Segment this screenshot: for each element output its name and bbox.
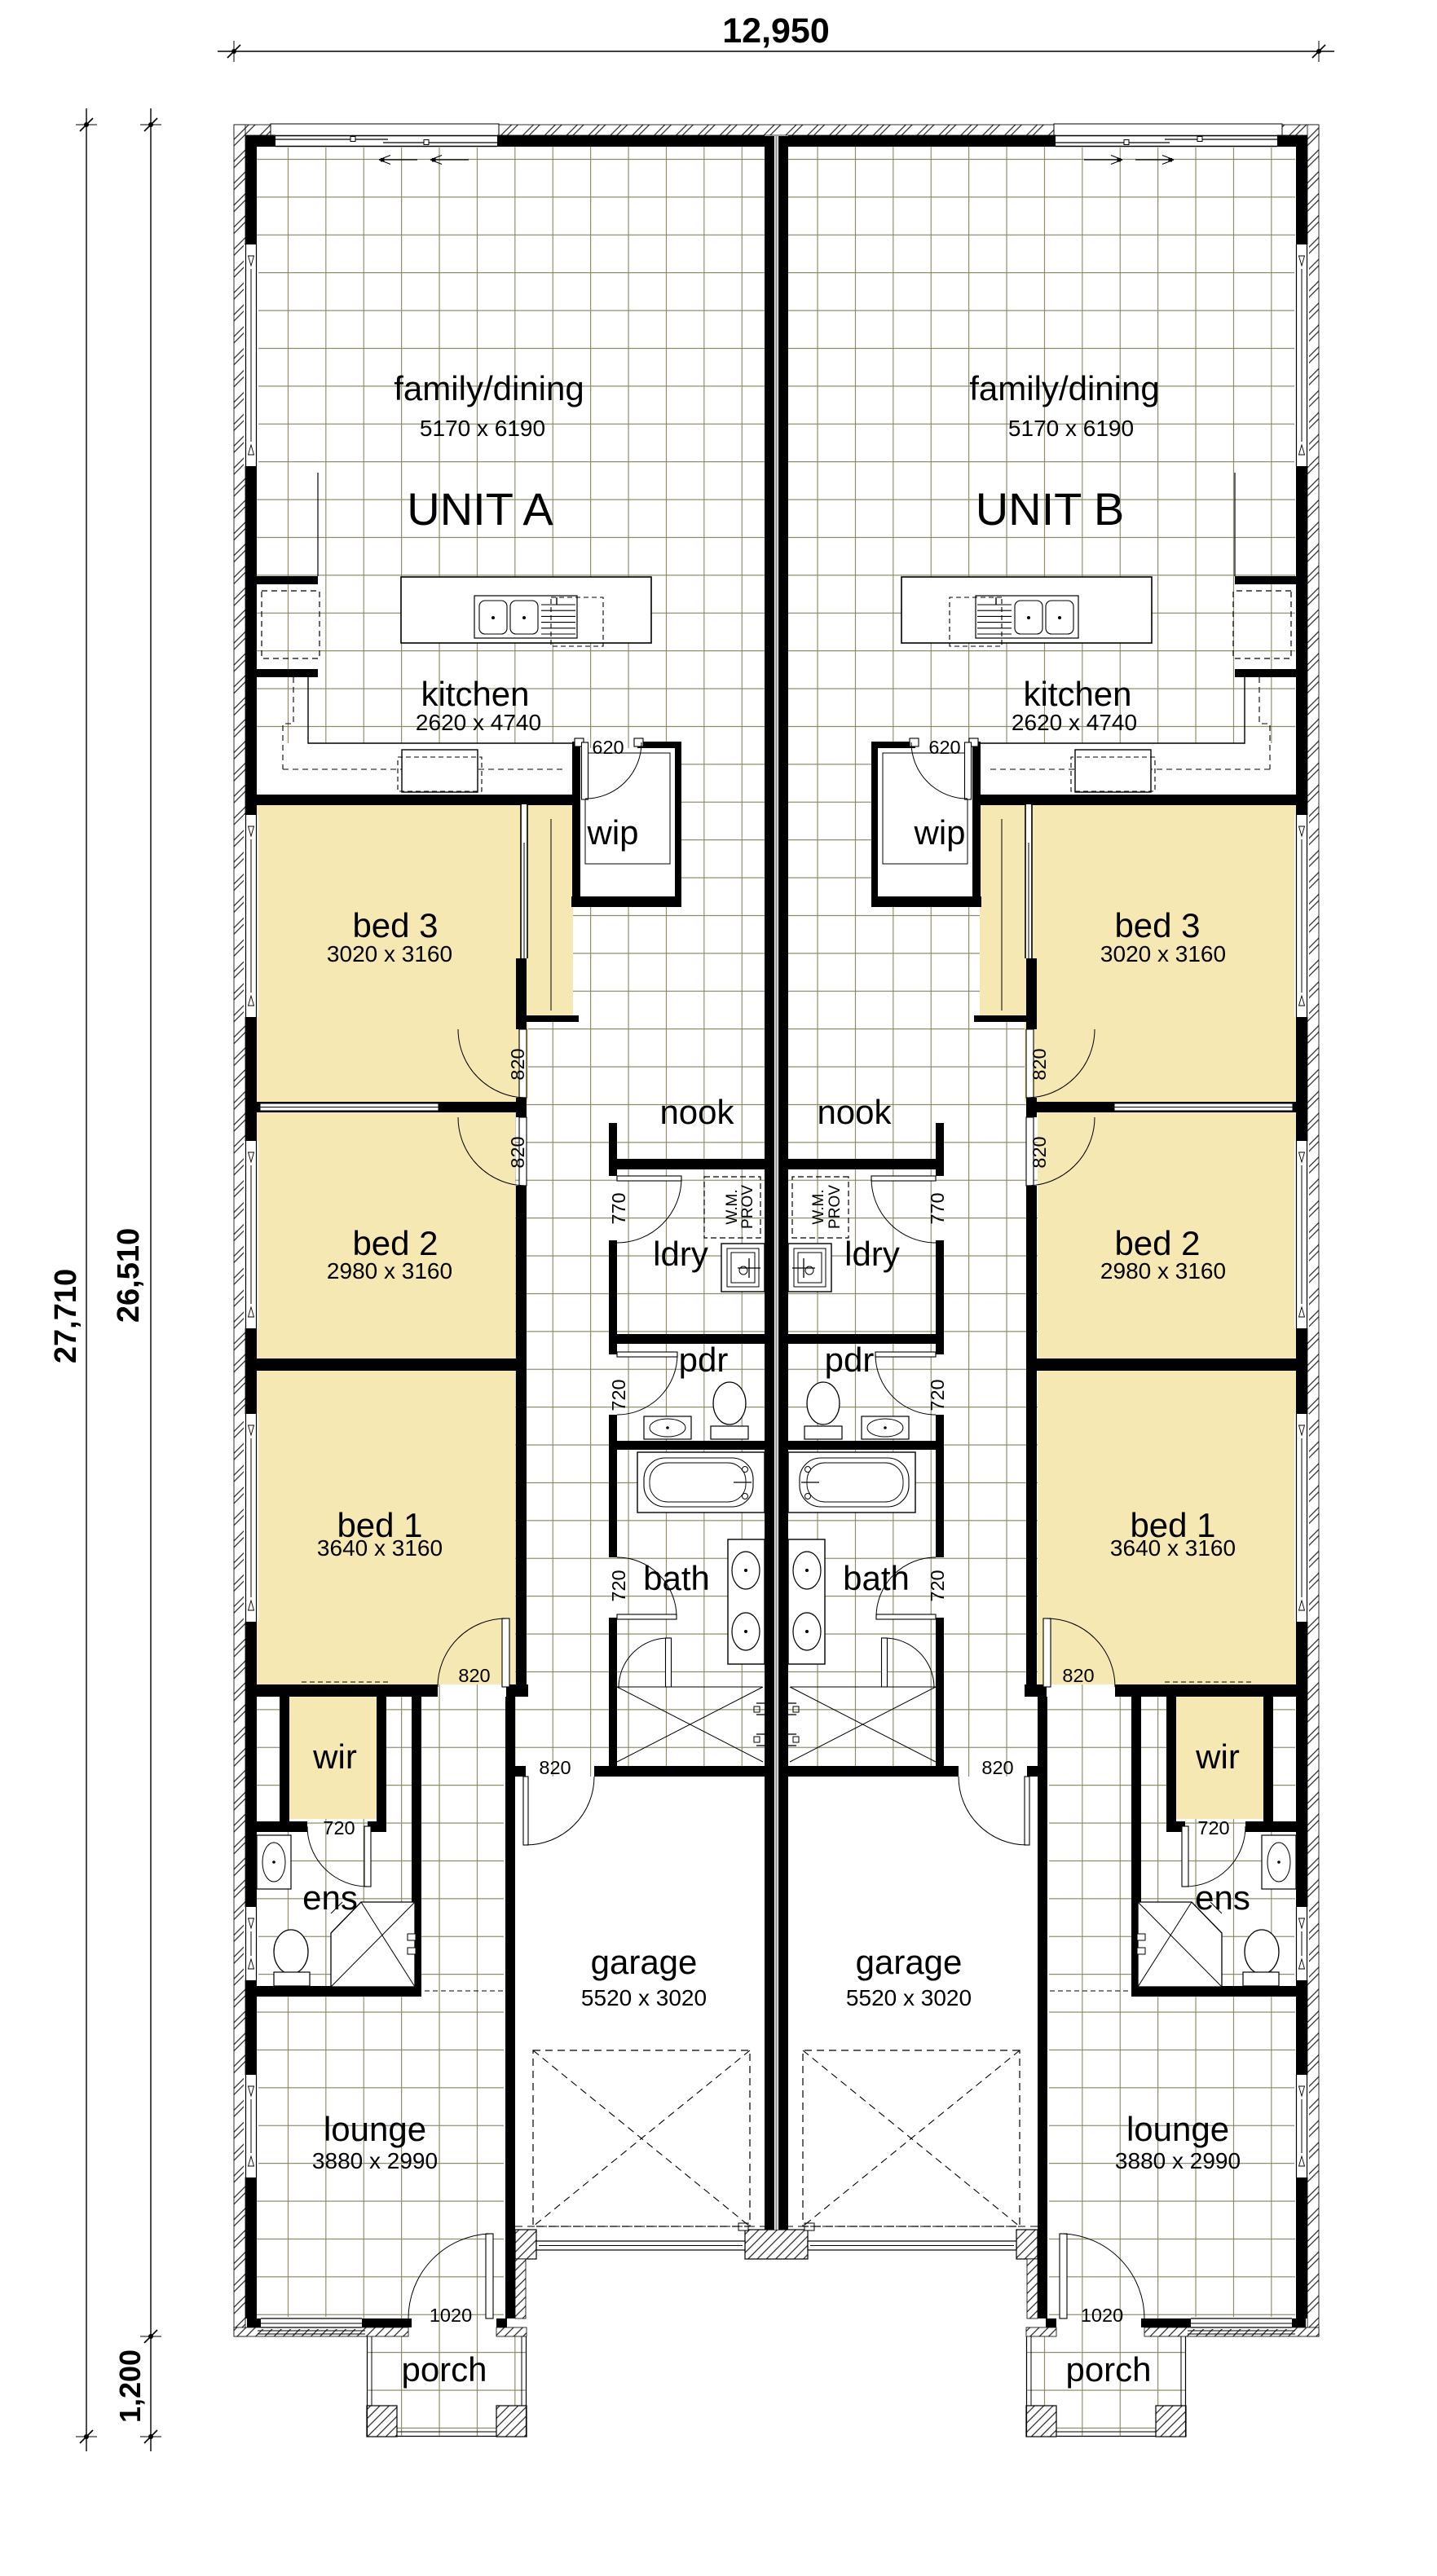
svg-text:lounge: lounge	[324, 2110, 426, 2148]
svg-text:porch: porch	[401, 2350, 487, 2389]
svg-text:620: 620	[592, 737, 624, 758]
svg-text:820: 820	[539, 1757, 571, 1778]
svg-text:wir: wir	[1195, 1737, 1240, 1776]
svg-text:3020 x 3160: 3020 x 3160	[1100, 941, 1226, 967]
svg-text:PROV: PROV	[739, 1185, 756, 1229]
svg-text:W.M.: W.M.	[810, 1189, 827, 1224]
svg-text:720: 720	[323, 1817, 355, 1838]
svg-text:bed 3: bed 3	[352, 906, 438, 945]
svg-text:770: 770	[608, 1192, 629, 1224]
svg-text:UNIT A: UNIT A	[407, 483, 553, 535]
svg-text:wir: wir	[312, 1737, 357, 1776]
svg-text:bed 3: bed 3	[1114, 906, 1200, 945]
svg-text:lounge: lounge	[1126, 2110, 1229, 2148]
svg-text:3640 x 3160: 3640 x 3160	[1110, 1535, 1236, 1561]
svg-text:1020: 1020	[1081, 2305, 1123, 2326]
svg-text:pdr: pdr	[679, 1341, 729, 1379]
svg-text:family/dining: family/dining	[394, 369, 584, 407]
svg-text:3880 x 2990: 3880 x 2990	[1115, 2148, 1241, 2173]
svg-text:620: 620	[928, 737, 960, 758]
svg-text:720: 720	[608, 1570, 629, 1601]
svg-text:2980 x 3160: 2980 x 3160	[1100, 1258, 1226, 1284]
svg-text:12,950: 12,950	[722, 11, 830, 51]
svg-text:ldry: ldry	[844, 1235, 900, 1273]
svg-text:5170 x 6190: 5170 x 6190	[420, 416, 545, 441]
svg-text:2620 x 4740: 2620 x 4740	[1012, 710, 1137, 735]
svg-text:garage: garage	[856, 1943, 963, 1981]
svg-text:820: 820	[458, 1665, 490, 1686]
svg-text:720: 720	[1197, 1817, 1229, 1838]
svg-text:3020 x 3160: 3020 x 3160	[327, 941, 452, 967]
svg-text:wip: wip	[913, 813, 965, 852]
svg-text:5520 x 3020: 5520 x 3020	[846, 1985, 972, 2010]
svg-text:ens: ens	[1195, 1878, 1250, 1917]
svg-text:1,200: 1,200	[113, 2349, 147, 2423]
svg-text:820: 820	[981, 1757, 1013, 1778]
svg-text:ldry: ldry	[653, 1235, 708, 1273]
svg-text:720: 720	[927, 1570, 948, 1601]
svg-text:W.M.: W.M.	[724, 1189, 741, 1224]
svg-text:26,510: 26,510	[112, 1228, 146, 1323]
svg-text:3640 x 3160: 3640 x 3160	[317, 1535, 443, 1561]
svg-text:820: 820	[1029, 1048, 1050, 1080]
svg-text:bath: bath	[843, 1559, 910, 1597]
svg-text:3880 x 2990: 3880 x 2990	[312, 2148, 438, 2173]
svg-text:family/dining: family/dining	[969, 369, 1159, 407]
svg-text:garage: garage	[591, 1943, 698, 1981]
svg-text:UNIT B: UNIT B	[976, 483, 1125, 535]
svg-text:820: 820	[1029, 1136, 1050, 1168]
svg-text:PROV: PROV	[826, 1185, 844, 1229]
svg-text:2980 x 3160: 2980 x 3160	[327, 1258, 452, 1284]
svg-text:770: 770	[927, 1192, 948, 1224]
svg-text:kitchen: kitchen	[1023, 675, 1131, 713]
svg-text:nook: nook	[659, 1093, 734, 1131]
svg-text:2620 x 4740: 2620 x 4740	[416, 710, 541, 735]
svg-text:27,710: 27,710	[49, 1269, 83, 1363]
svg-text:1020: 1020	[430, 2305, 472, 2326]
svg-text:5170 x 6190: 5170 x 6190	[1008, 416, 1134, 441]
svg-text:bed 2: bed 2	[352, 1224, 438, 1262]
svg-text:820: 820	[1062, 1665, 1094, 1686]
svg-text:720: 720	[927, 1379, 948, 1411]
svg-text:ens: ens	[302, 1878, 358, 1917]
svg-text:wip: wip	[586, 813, 638, 852]
svg-text:bed 2: bed 2	[1114, 1224, 1200, 1262]
svg-text:pdr: pdr	[825, 1341, 875, 1379]
svg-text:5520 x 3020: 5520 x 3020	[581, 1985, 707, 2010]
svg-text:820: 820	[507, 1048, 528, 1080]
svg-text:porch: porch	[1065, 2350, 1151, 2389]
svg-text:kitchen: kitchen	[421, 675, 529, 713]
svg-text:bath: bath	[643, 1559, 710, 1597]
svg-text:nook: nook	[817, 1093, 892, 1131]
svg-text:820: 820	[507, 1136, 528, 1168]
svg-text:720: 720	[608, 1379, 629, 1411]
